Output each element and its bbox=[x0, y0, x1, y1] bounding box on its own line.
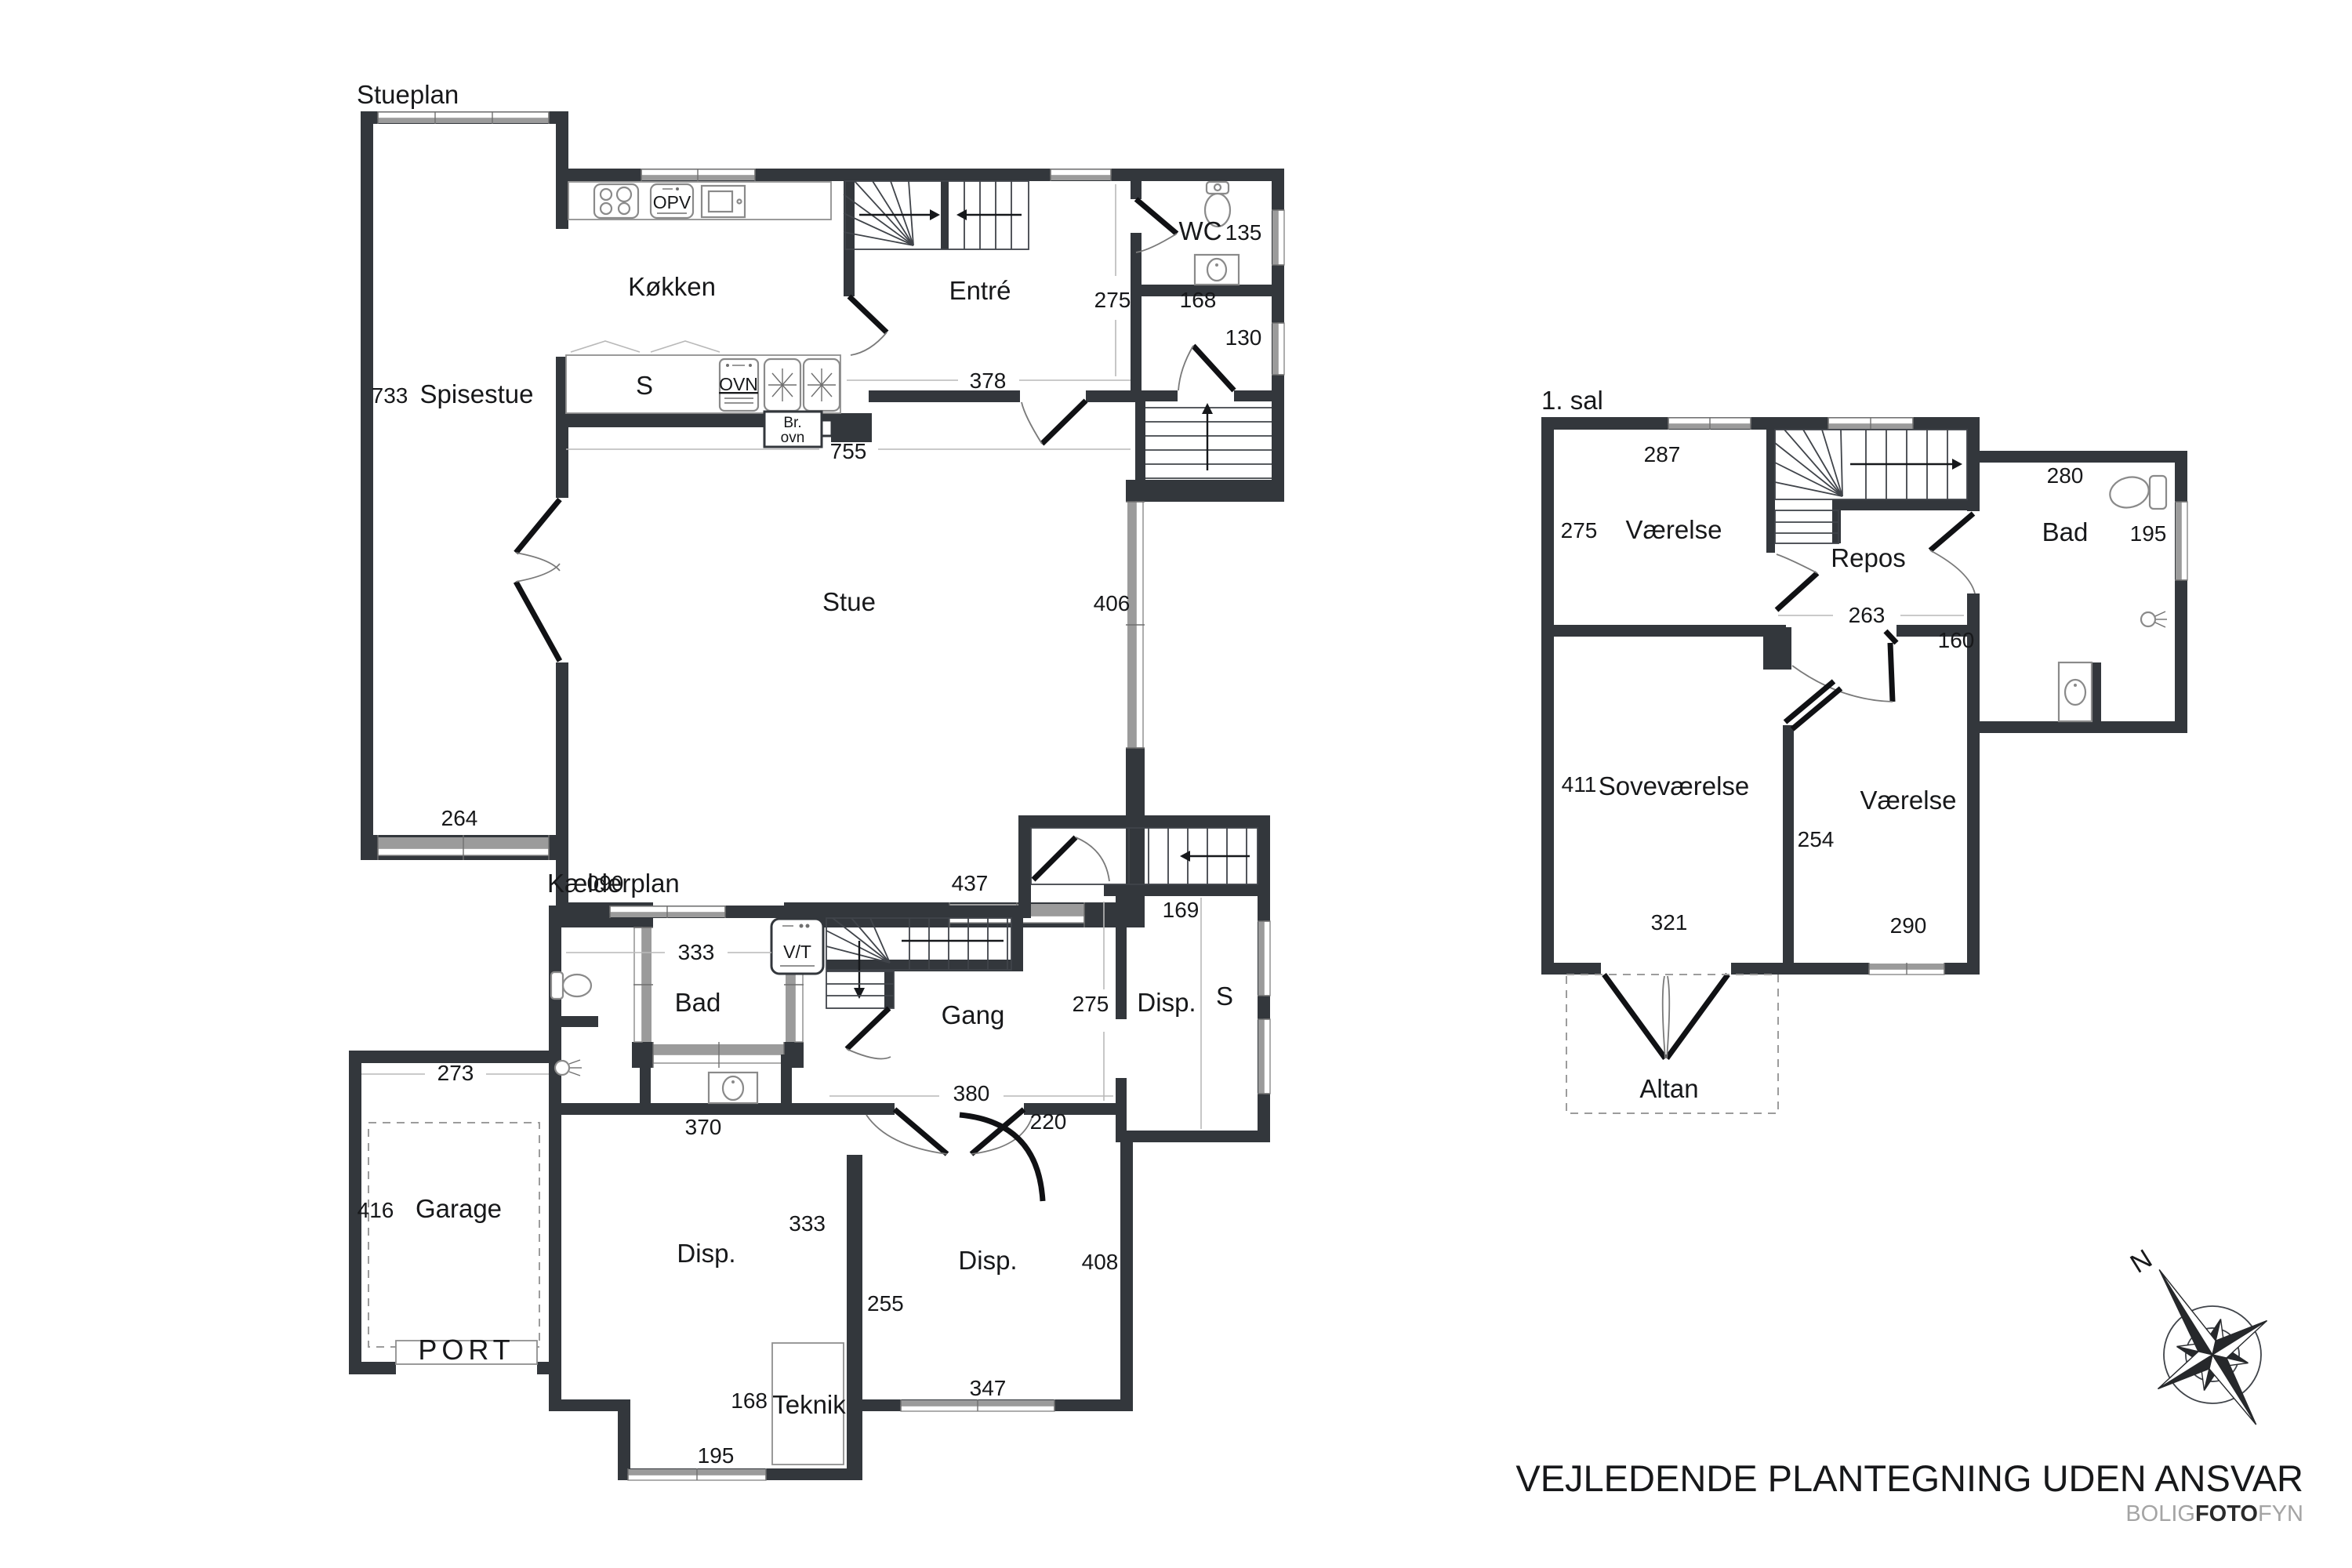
dim-347: 347 bbox=[970, 1376, 1007, 1400]
window bbox=[1051, 169, 1111, 181]
dim-195: 195 bbox=[698, 1443, 735, 1468]
dim-135: 135 bbox=[1225, 220, 1262, 245]
stair-divider bbox=[941, 181, 949, 249]
wall bbox=[884, 971, 894, 1008]
dim-254: 254 bbox=[1798, 827, 1835, 851]
door bbox=[1792, 631, 1896, 702]
compass-north-label: N bbox=[2125, 1243, 2158, 1279]
dim-130: 130 bbox=[1225, 325, 1262, 350]
floor-title: 1. sal bbox=[1541, 386, 1603, 415]
sink-icon bbox=[702, 186, 745, 217]
dim-273: 273 bbox=[437, 1061, 474, 1085]
room-entre: Entré bbox=[949, 276, 1011, 305]
room-bad: Bad bbox=[2042, 517, 2089, 546]
oven-label: OVN bbox=[719, 374, 758, 394]
dim-263: 263 bbox=[1849, 603, 1886, 627]
wall bbox=[618, 1399, 630, 1480]
dim-321: 321 bbox=[1651, 910, 1688, 935]
wall bbox=[847, 1155, 862, 1480]
dim-275: 275 bbox=[1561, 518, 1598, 543]
hob-icon bbox=[594, 184, 638, 218]
brand-part-bolig: BOLIG bbox=[2125, 1501, 2195, 1526]
room-disp-sw: Disp. bbox=[677, 1239, 735, 1268]
wall bbox=[1541, 417, 1554, 975]
dim-333b: 333 bbox=[789, 1211, 826, 1236]
door bbox=[1033, 837, 1109, 881]
wall bbox=[1967, 451, 2187, 463]
stove-label-2: ovn bbox=[781, 430, 805, 446]
chimney bbox=[1763, 627, 1791, 670]
dim-195: 195 bbox=[2130, 521, 2167, 546]
floor-title: Stueplan bbox=[357, 80, 459, 109]
floor-title: Kælderplan bbox=[547, 869, 680, 898]
dim-333a: 333 bbox=[678, 940, 715, 964]
wall bbox=[1131, 181, 1142, 199]
dim-408: 408 bbox=[1082, 1250, 1119, 1274]
closet-label: S bbox=[1216, 982, 1233, 1011]
wall bbox=[844, 249, 855, 296]
room-repos: Repos bbox=[1831, 543, 1905, 572]
room-bad: Bad bbox=[675, 988, 721, 1017]
window bbox=[1272, 210, 1284, 265]
oven-icon: OVN bbox=[719, 359, 758, 411]
stair-to-basement bbox=[1145, 403, 1272, 478]
room-disp-ne: Disp. bbox=[1137, 988, 1196, 1017]
door bbox=[1178, 346, 1234, 390]
wall bbox=[2092, 662, 2101, 721]
port-label: PORT bbox=[418, 1334, 514, 1366]
wall bbox=[640, 1054, 651, 1103]
wall bbox=[1838, 499, 1967, 510]
dim-168: 168 bbox=[731, 1388, 768, 1413]
cabinet-mark bbox=[651, 341, 720, 352]
room-teknik: Teknik bbox=[772, 1390, 846, 1419]
room-sovevaerelse: Soveværelse bbox=[1599, 771, 1750, 800]
window bbox=[610, 906, 725, 918]
wall bbox=[349, 1362, 396, 1374]
wall bbox=[549, 1399, 627, 1411]
wall bbox=[1018, 815, 1270, 828]
wall bbox=[1766, 430, 1775, 553]
wall bbox=[1944, 963, 1980, 975]
wall bbox=[1541, 417, 1980, 430]
window bbox=[1126, 502, 1145, 748]
brand-part-fyn: FYN bbox=[2258, 1501, 2303, 1526]
room-vaerelse: Værelse bbox=[1626, 515, 1722, 544]
window bbox=[1828, 417, 1913, 430]
brand-part-foto: FOTO bbox=[2195, 1501, 2258, 1526]
cabinet-mark bbox=[571, 341, 640, 352]
sink-icon bbox=[709, 1073, 757, 1103]
wall bbox=[1234, 390, 1284, 401]
room-koekken: Køkken bbox=[628, 272, 716, 301]
dim-255: 255 bbox=[867, 1291, 904, 1316]
washer-dryer-icon: V/T bbox=[771, 919, 823, 974]
door bbox=[849, 296, 887, 355]
wall bbox=[1104, 884, 1270, 896]
window bbox=[1668, 417, 1751, 430]
wall bbox=[549, 1016, 598, 1027]
dim-168: 168 bbox=[1180, 288, 1217, 312]
window bbox=[1258, 1019, 1270, 1094]
compass-rose: N bbox=[2088, 1209, 2310, 1458]
dim-169: 169 bbox=[1163, 898, 1200, 922]
wall bbox=[1018, 815, 1031, 917]
wall bbox=[1832, 499, 1841, 543]
door bbox=[1777, 554, 1817, 610]
brand-logo: BOLIGFOTOFYN bbox=[2125, 1501, 2303, 1526]
chimney bbox=[831, 416, 872, 442]
dim-220: 220 bbox=[1030, 1109, 1067, 1134]
sink-icon bbox=[1195, 255, 1239, 285]
door bbox=[516, 499, 560, 571]
door bbox=[847, 1008, 891, 1058]
stair-up bbox=[1775, 430, 1967, 543]
dim-275: 275 bbox=[1094, 288, 1131, 312]
wall bbox=[1967, 417, 1980, 511]
wall bbox=[1135, 390, 1145, 480]
dim-275: 275 bbox=[1073, 992, 1109, 1016]
fridge-icon bbox=[764, 359, 800, 411]
door bbox=[1136, 199, 1177, 252]
first-floor: 1. sal bbox=[1541, 386, 2187, 1113]
window bbox=[641, 169, 755, 181]
dim-370: 370 bbox=[685, 1115, 722, 1139]
dishwasher-icon: OPV bbox=[651, 184, 693, 218]
washer-dryer-label: V/T bbox=[783, 942, 811, 962]
window bbox=[2175, 502, 2187, 580]
window bbox=[1272, 323, 1284, 375]
stair-up bbox=[844, 181, 1029, 249]
wall bbox=[1783, 725, 1794, 975]
window bbox=[1258, 921, 1270, 996]
dim-733: 733 bbox=[372, 383, 408, 408]
door bbox=[516, 564, 560, 661]
room-vaerelse-2: Værelse bbox=[1860, 786, 1957, 815]
window bbox=[628, 1468, 766, 1480]
room-stue: Stue bbox=[822, 587, 876, 616]
wall bbox=[2175, 451, 2187, 733]
dim-378: 378 bbox=[970, 368, 1007, 393]
door bbox=[1022, 401, 1086, 444]
wall bbox=[361, 111, 373, 860]
wall bbox=[781, 1054, 792, 1103]
wall bbox=[1131, 233, 1142, 285]
window bbox=[378, 111, 549, 124]
wall bbox=[549, 1103, 895, 1115]
toilet-icon bbox=[551, 972, 591, 999]
disclaimer-text: VEJLEDENDE PLANTEGNING UDEN ANSVAR bbox=[1515, 1457, 2303, 1499]
wall bbox=[1131, 285, 1142, 402]
dim-380: 380 bbox=[953, 1081, 990, 1105]
dim-290: 290 bbox=[1890, 913, 1927, 938]
toilet-icon bbox=[2107, 473, 2166, 512]
dim-411: 411 bbox=[1562, 772, 1597, 797]
floor-plan-canvas: Stueplan bbox=[0, 0, 2352, 1568]
room-wc: WC bbox=[1179, 216, 1222, 245]
wood-stove: Br. ovn bbox=[764, 412, 832, 447]
dim-280: 280 bbox=[2047, 463, 2084, 488]
wall bbox=[1086, 390, 1142, 402]
stove-label-1: Br. bbox=[783, 415, 801, 431]
dim-160: 160 bbox=[1938, 628, 1975, 652]
dim-406: 406 bbox=[1094, 591, 1131, 615]
shower-icon bbox=[555, 1060, 582, 1076]
room-spisestue: Spisestue bbox=[420, 379, 534, 408]
dim-755: 755 bbox=[830, 439, 867, 463]
room-disp-se: Disp. bbox=[958, 1246, 1017, 1275]
wall bbox=[1126, 480, 1284, 502]
wall bbox=[1120, 1142, 1133, 1411]
room-altan: Altan bbox=[1639, 1074, 1698, 1103]
dishwasher-label: OPV bbox=[653, 192, 691, 212]
wall bbox=[1541, 625, 1786, 637]
room-garage: Garage bbox=[416, 1194, 502, 1223]
wall bbox=[537, 1362, 561, 1374]
sink-icon bbox=[2059, 662, 2092, 721]
balcony-doors bbox=[1604, 975, 1728, 1058]
room-gang: Gang bbox=[942, 1000, 1005, 1029]
wall bbox=[1980, 721, 2187, 733]
pantry-label: S bbox=[636, 371, 653, 400]
freezer-icon bbox=[804, 359, 840, 411]
window bbox=[1869, 963, 1944, 975]
wall bbox=[1116, 896, 1127, 1019]
dim-287: 287 bbox=[1644, 442, 1681, 466]
parking-outline bbox=[368, 1123, 539, 1347]
dim-264: 264 bbox=[441, 806, 478, 830]
wall bbox=[1541, 963, 1601, 975]
dim-437: 437 bbox=[952, 871, 989, 895]
shower-icon bbox=[2141, 612, 2167, 627]
door bbox=[1930, 514, 1975, 593]
window bbox=[901, 1399, 1054, 1411]
dim-416: 416 bbox=[358, 1198, 394, 1222]
wall bbox=[1116, 1131, 1270, 1142]
wall bbox=[1731, 963, 1869, 975]
